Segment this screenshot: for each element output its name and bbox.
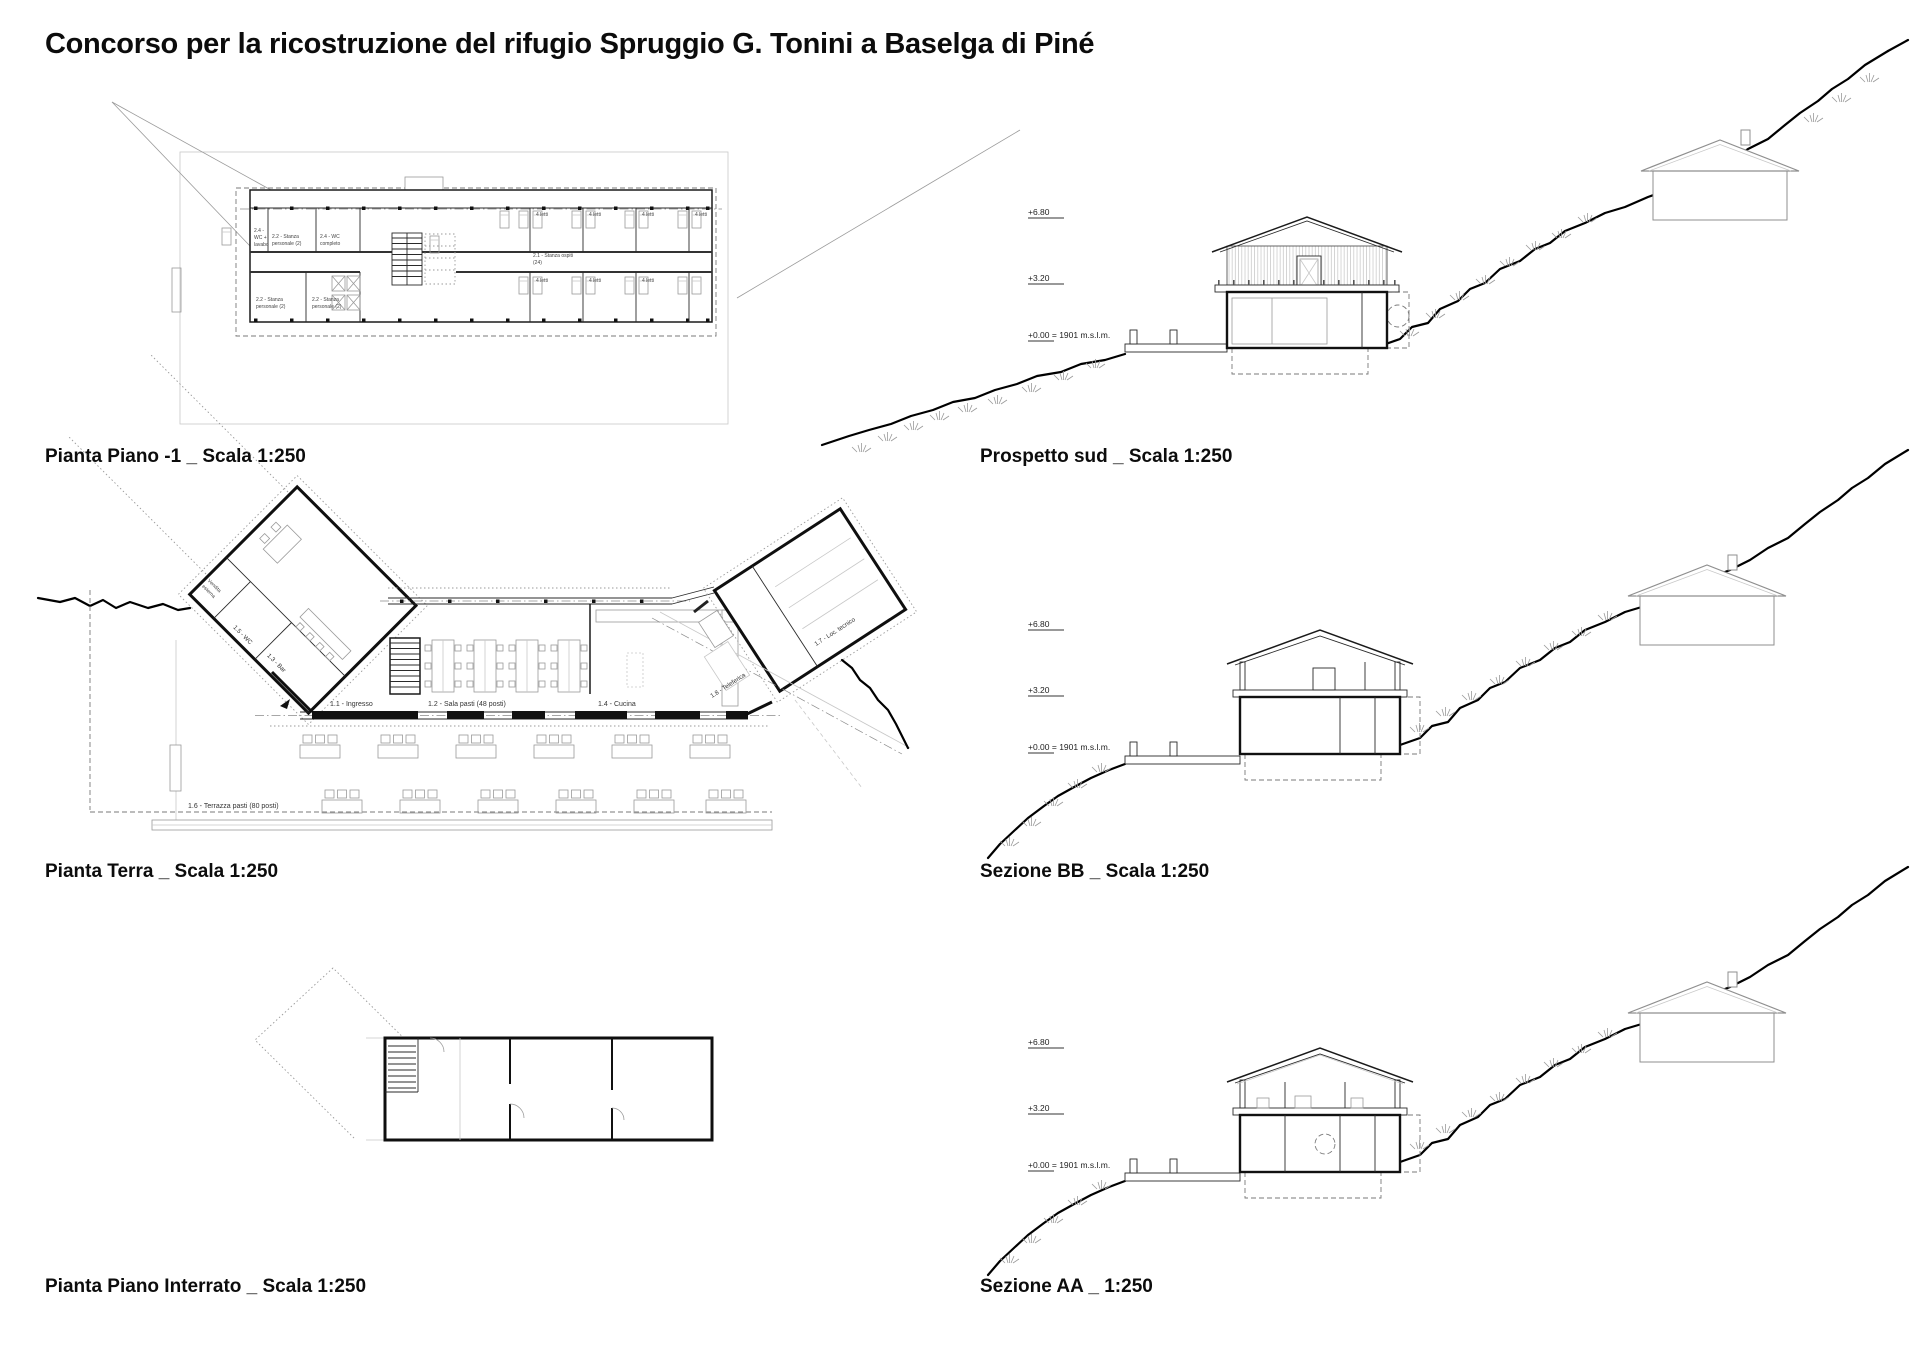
beds-label: 4 letti (589, 212, 601, 218)
room-label: 2.2 - Stanza (256, 297, 283, 303)
room-label: lavabo (254, 242, 269, 248)
room-label: 2.1 - Stanza ospiti (533, 253, 573, 259)
room-label: WC + (254, 235, 267, 241)
pianta-terra-drawing: Vendita esterna 1.5 - WC 1.3 - Bar (38, 354, 917, 830)
prospetto-sud-drawing (822, 40, 1908, 452)
beds-label: 4 letti (536, 212, 548, 218)
room-label: 1.6 - Terrazza pasti (80 posti) (188, 803, 279, 810)
pianta-piano-m1-drawing: 2.4 - WC + lavabo 2.2 - Stanza personale… (112, 102, 1020, 424)
beds-label: 4 letti (536, 278, 548, 284)
beds-label: 4 letti (589, 278, 601, 284)
south-wall-piers (312, 711, 748, 719)
room-label: 2.4 - WC (320, 234, 340, 240)
room-label: 1.4 - Cucina (598, 701, 636, 708)
competition-sheet: Concorso per la ricostruzione del rifugi… (0, 0, 1920, 1358)
room-label: (24) (533, 260, 542, 266)
room-label: 2.2 - Stanza (312, 297, 339, 303)
room-label: 2.2 - Stanza (272, 234, 299, 240)
room-label: completo (320, 241, 341, 247)
sezione-bb-interior (1313, 662, 1365, 690)
sezione-aa-drawing (988, 867, 1908, 1275)
room-label: personale (2) (256, 304, 286, 310)
sezione-bb-drawing (988, 450, 1908, 858)
room-label: 1.1 - Ingresso (330, 701, 373, 708)
drawings-canvas: +6.80 +3.20 +0.00 = 1901 m.s.l.m. (0, 0, 1920, 1358)
beds-label: 4 letti (642, 278, 654, 284)
room-label: personale (2) (312, 304, 342, 310)
refuge-elevation (1212, 217, 1409, 374)
room-label: personale (2) (272, 241, 302, 247)
beds-label: 4 letti (695, 212, 707, 218)
beds-label: 4 letti (642, 212, 654, 218)
stair-terra (390, 638, 420, 694)
pianta-interrato-drawing (255, 968, 712, 1140)
room-label: 1.2 - Sala pasti (48 posti) (428, 701, 506, 708)
room-label: 2.4 - (254, 228, 264, 234)
entry-arrow (280, 699, 290, 709)
